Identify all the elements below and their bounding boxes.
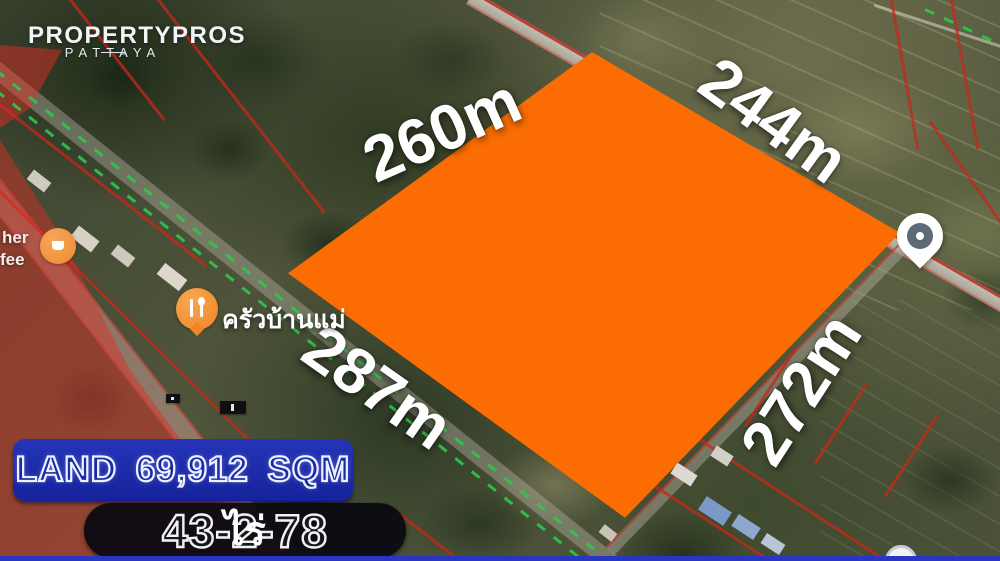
spoon-icon: [198, 297, 205, 306]
area-sqm-text: LAND 69,912 SQM: [16, 450, 350, 490]
road-marker: [220, 401, 246, 414]
listing-image: 260m 244m 287m 272m PROPERTYPROS PATTAYA…: [0, 0, 1000, 561]
road-marker: [166, 394, 180, 403]
fork-icon: [190, 299, 193, 317]
coffee-poi-label: her: [2, 228, 28, 248]
area-rai-unit: ไร่: [224, 499, 266, 561]
road-marker-dot: [171, 397, 174, 400]
coffee-poi-pin: [40, 228, 76, 264]
area-rai-banner: 43-2-78 ไร่: [84, 503, 406, 558]
logo-dash: [101, 52, 125, 53]
restaurant-poi-label: ครัวบ้านแม่: [222, 300, 346, 340]
coffee-poi-label: fee: [0, 250, 25, 270]
bottom-accent-strip: [0, 556, 1000, 561]
road-marker-dot: [231, 404, 234, 411]
coffee-cup-icon: [52, 241, 64, 250]
restaurant-poi-pin: [176, 288, 218, 330]
area-sqm-banner: LAND 69,912 SQM: [13, 439, 353, 501]
